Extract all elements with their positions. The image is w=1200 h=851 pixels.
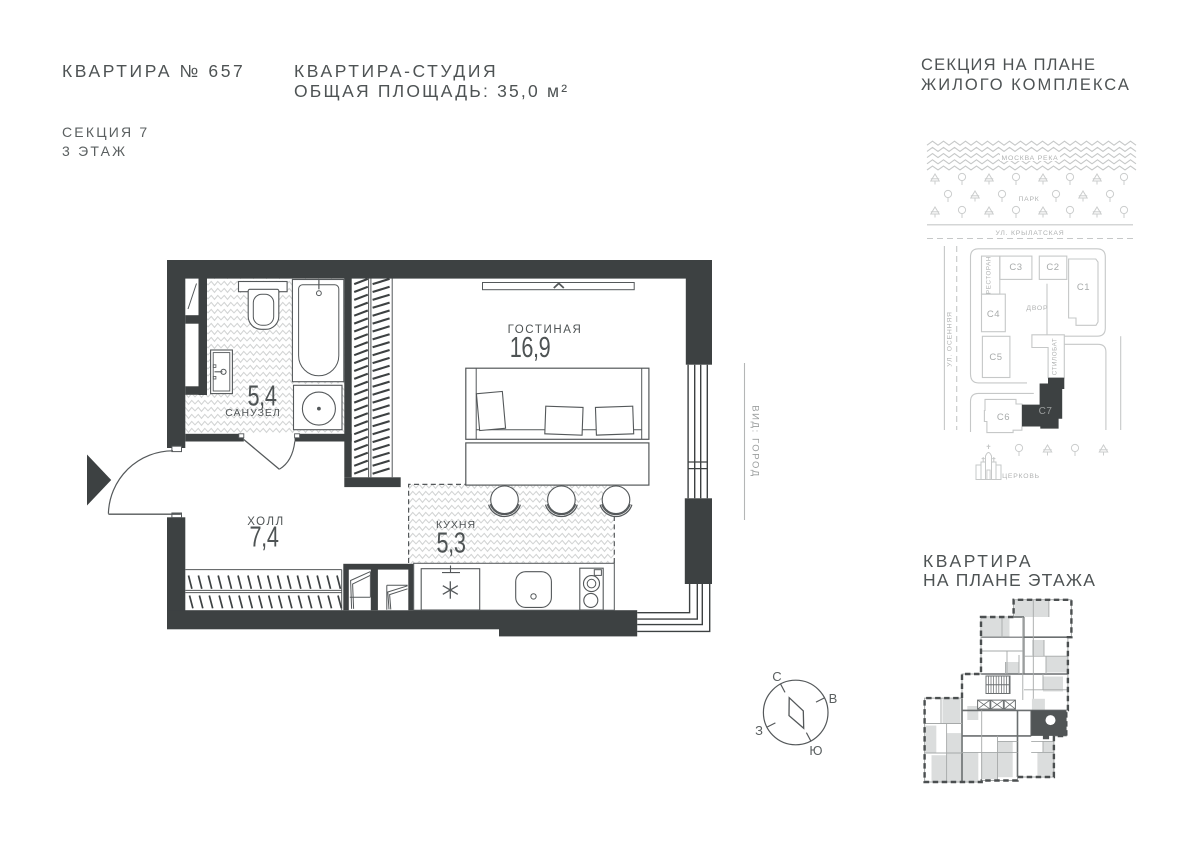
svg-text:С7: С7	[1039, 406, 1053, 417]
svg-text:МОСКВА РЕКА: МОСКВА РЕКА	[1002, 155, 1059, 162]
svg-text:ПАРК: ПАРК	[1018, 196, 1039, 203]
svg-text:ДВОР: ДВОР	[1026, 305, 1048, 312]
svg-text:С6: С6	[997, 412, 1010, 423]
svg-text:ВИД: ГОРОД: ВИД: ГОРОД	[750, 405, 761, 478]
svg-text:В: В	[829, 691, 838, 706]
svg-text:НА ПЛАНЕ ЭТАЖА: НА ПЛАНЕ ЭТАЖА	[923, 570, 1096, 590]
svg-text:ЖИЛОГО КОМПЛЕКСА: ЖИЛОГО КОМПЛЕКСА	[921, 76, 1131, 94]
svg-text:З: З	[755, 723, 763, 738]
svg-text:С5: С5	[989, 352, 1002, 363]
svg-text:ЦЕРКОВЬ: ЦЕРКОВЬ	[1002, 473, 1040, 480]
svg-text:ОБЩАЯ ПЛОЩАДЬ: 35,0 м²: ОБЩАЯ ПЛОЩАДЬ: 35,0 м²	[294, 81, 569, 101]
svg-text:16,9: 16,9	[510, 332, 551, 364]
svg-text:САНУЗЕЛ: САНУЗЕЛ	[225, 407, 281, 419]
svg-text:С1: С1	[1077, 282, 1090, 293]
svg-text:КВАРТИРА № 657: КВАРТИРА № 657	[62, 61, 245, 81]
svg-text:С4: С4	[987, 309, 1000, 320]
svg-text:Ю: Ю	[809, 743, 822, 758]
svg-text:7,4: 7,4	[250, 522, 279, 554]
svg-text:СТИЛОБАТ: СТИЛОБАТ	[1051, 338, 1058, 376]
svg-text:СЕКЦИЯ 7: СЕКЦИЯ 7	[62, 124, 149, 140]
svg-text:С2: С2	[1046, 262, 1059, 273]
svg-text:РЕСТОРАН: РЕСТОРАН	[986, 256, 993, 294]
svg-text:КВАРТИРА: КВАРТИРА	[923, 551, 1033, 571]
svg-text:5,3: 5,3	[437, 528, 466, 560]
svg-text:УЛ. ОСЕННЯЯ: УЛ. ОСЕННЯЯ	[947, 311, 954, 367]
svg-text:СЕКЦИЯ НА ПЛАНЕ: СЕКЦИЯ НА ПЛАНЕ	[921, 56, 1096, 74]
svg-text:С3: С3	[1009, 262, 1022, 273]
svg-text:3 ЭТАЖ: 3 ЭТАЖ	[62, 143, 127, 159]
svg-text:УЛ. КРЫЛАТСКАЯ: УЛ. КРЫЛАТСКАЯ	[996, 230, 1065, 237]
svg-text:С: С	[772, 669, 781, 684]
svg-text:КВАРТИРА-СТУДИЯ: КВАРТИРА-СТУДИЯ	[294, 61, 498, 81]
